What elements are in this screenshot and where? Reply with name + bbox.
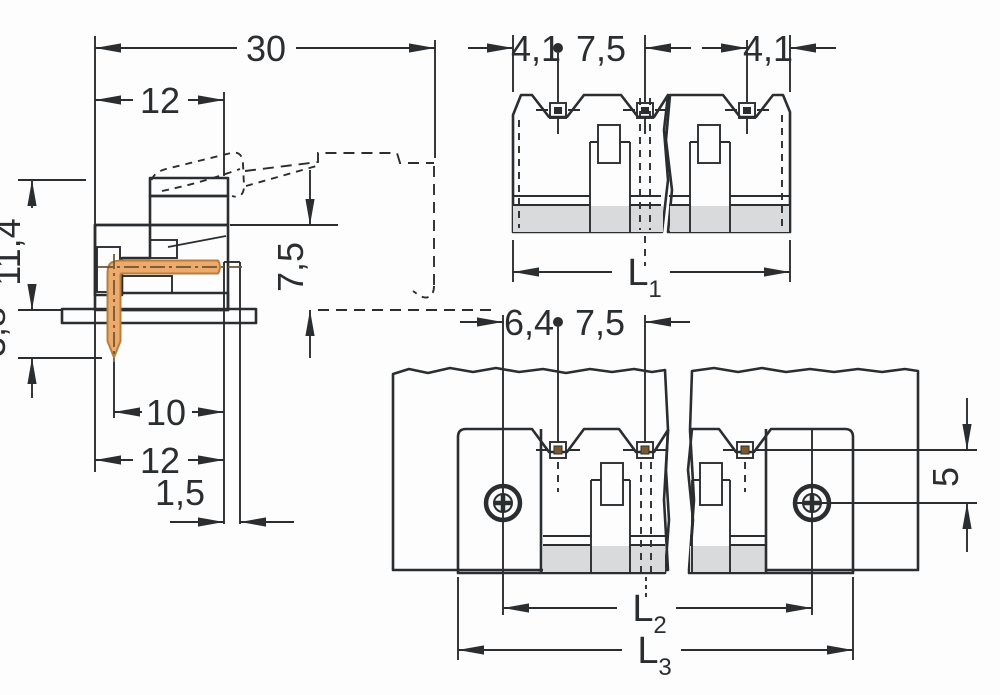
pin-2-core	[641, 107, 649, 114]
dim-label-L2: L	[632, 588, 653, 630]
technical-drawing-page: 30 12 11,4 3,8 7,5 10 12 1,5	[0, 0, 1000, 695]
dim-label-L1: L	[627, 252, 648, 294]
dim-label-7-5-front: 7,5	[576, 28, 626, 69]
dim-label-7-5-board: 7,5	[575, 302, 625, 343]
board-left-lower-band	[543, 546, 665, 572]
board-pin-1-core	[554, 446, 562, 454]
dim-label-10: 10	[146, 392, 186, 433]
dim-label-3-8: 3,8	[0, 307, 13, 357]
pin-3-core	[743, 107, 751, 114]
dim-label-5: 5	[925, 467, 966, 487]
technical-drawing: 30 12 11,4 3,8 7,5 10 12 1,5	[0, 0, 1000, 695]
dim-label-7-5-side: 7,5	[270, 242, 311, 292]
dim-label-L1-sub: 1	[648, 276, 661, 303]
pin-1-core	[554, 107, 562, 114]
board-pin-2-core	[641, 446, 649, 454]
dim-dot-terminator	[553, 43, 563, 53]
dim-dot-terminator-board	[553, 317, 563, 327]
dim-label-L3-sub: 3	[658, 654, 671, 681]
dim-label-6-4: 6,4	[504, 302, 554, 343]
dim-label-12-top: 12	[140, 80, 180, 121]
board-pin-3-core	[741, 446, 749, 454]
dim-label-1-5: 1,5	[155, 472, 205, 513]
board-right-lower-band	[690, 546, 766, 572]
dim-label-30: 30	[246, 28, 286, 69]
dim-label-4-1-right: 4,1	[743, 28, 793, 69]
dim-label-L3: L	[637, 630, 658, 672]
dim-label-11-4: 11,4	[0, 218, 28, 285]
